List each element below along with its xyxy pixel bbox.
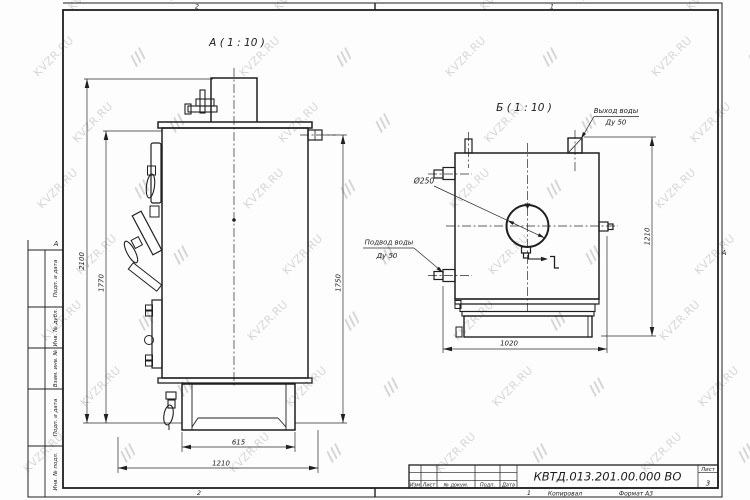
base-tray — [455, 299, 599, 337]
zone-bottom-left: 2 — [197, 489, 201, 497]
ash-lever — [162, 392, 176, 430]
tb-sheet-label: Лист — [700, 467, 716, 473]
dim-2100: 2100 — [78, 252, 86, 270]
upper-door — [145, 143, 161, 217]
side-field-column: Подп. и дата Инв. № дубл. Взам. инв. № П… — [28, 250, 63, 497]
tb-col-doc: № докум. — [443, 483, 469, 489]
title-block: Изм Лист № докум. Подп. Дата КВТД.013.20… — [409, 465, 718, 489]
view-a-title: А ( 1 : 10 ) — [208, 37, 265, 49]
tb-col-podp: Подп. — [480, 483, 495, 489]
side-field-1: Инв. № дубл. — [53, 308, 59, 346]
side-field-4: Инв. № подл. — [53, 452, 59, 490]
tb-col-data: Дата — [501, 483, 515, 489]
boiler-side-outline — [158, 78, 312, 430]
dim-1770: 1770 — [98, 274, 106, 292]
hinge-bar — [145, 300, 163, 368]
zone-letter-right: А — [721, 249, 727, 257]
view-b-dimensions: 1210 1020 — [443, 137, 656, 353]
loading-door — [122, 211, 162, 291]
drain-fitting — [522, 247, 560, 268]
view-a-dimensions: 2100 1770 1750 615 1210 — [78, 79, 347, 473]
label-diameter: Ø250 — [413, 177, 434, 186]
view-b: Б ( 1 : 10 ) — [363, 102, 656, 353]
label-inlet-2: Ду 50 — [376, 252, 398, 260]
label-outlet-1: Выход воды — [594, 107, 639, 115]
dim-615: 615 — [232, 439, 246, 447]
tb-sheet-number: 3 — [706, 480, 710, 488]
dim-1750: 1750 — [335, 274, 343, 292]
zone-top-left: 2 — [195, 3, 199, 11]
diameter-callout: Ø250 — [413, 177, 545, 238]
view-b-title: Б ( 1 : 10 ) — [496, 102, 552, 114]
boiler-rear-outline — [434, 138, 613, 299]
label-inlet-1: Подвод воды — [365, 239, 414, 247]
footer-copied: Копировал — [548, 491, 582, 498]
dim-1210-a: 1210 — [212, 460, 230, 468]
dim-1020: 1020 — [500, 340, 518, 348]
dim-1210-b: 1210 — [644, 227, 652, 245]
drawing-svg: 2 1 2 1 Копировал Формат А3 А А Подп. и … — [0, 0, 750, 500]
zone-top-right: 1 — [550, 3, 554, 11]
label-outlet-2: Ду 50 — [605, 119, 627, 127]
footer-format: Формат А3 — [619, 491, 653, 498]
zone-bottom-right: 1 — [527, 489, 531, 497]
tb-col-list: Лист — [422, 483, 437, 489]
side-field-2: Взам. инв. № — [53, 350, 59, 388]
zone-letter-left: А — [53, 240, 59, 248]
tb-col-izm: Изм — [410, 483, 420, 489]
chimney-damper-handle — [185, 90, 217, 114]
tb-doc-number: КВТД.013.201.00.000 ВО — [534, 470, 682, 484]
drawing-sheet: KVZR.RUKVZR.RUKVZR.RUKVZR.RUKVZR.RUKVZR.… — [0, 0, 750, 500]
outlet-callout: Выход воды Ду 50 — [581, 107, 639, 139]
inlet-callout: Подвод воды Ду 50 — [363, 239, 443, 273]
side-field-3: Подп. и дата — [53, 398, 59, 436]
side-field-0: Подп. и дата — [53, 259, 59, 297]
view-a: А ( 1 : 10 ) — [78, 37, 347, 473]
